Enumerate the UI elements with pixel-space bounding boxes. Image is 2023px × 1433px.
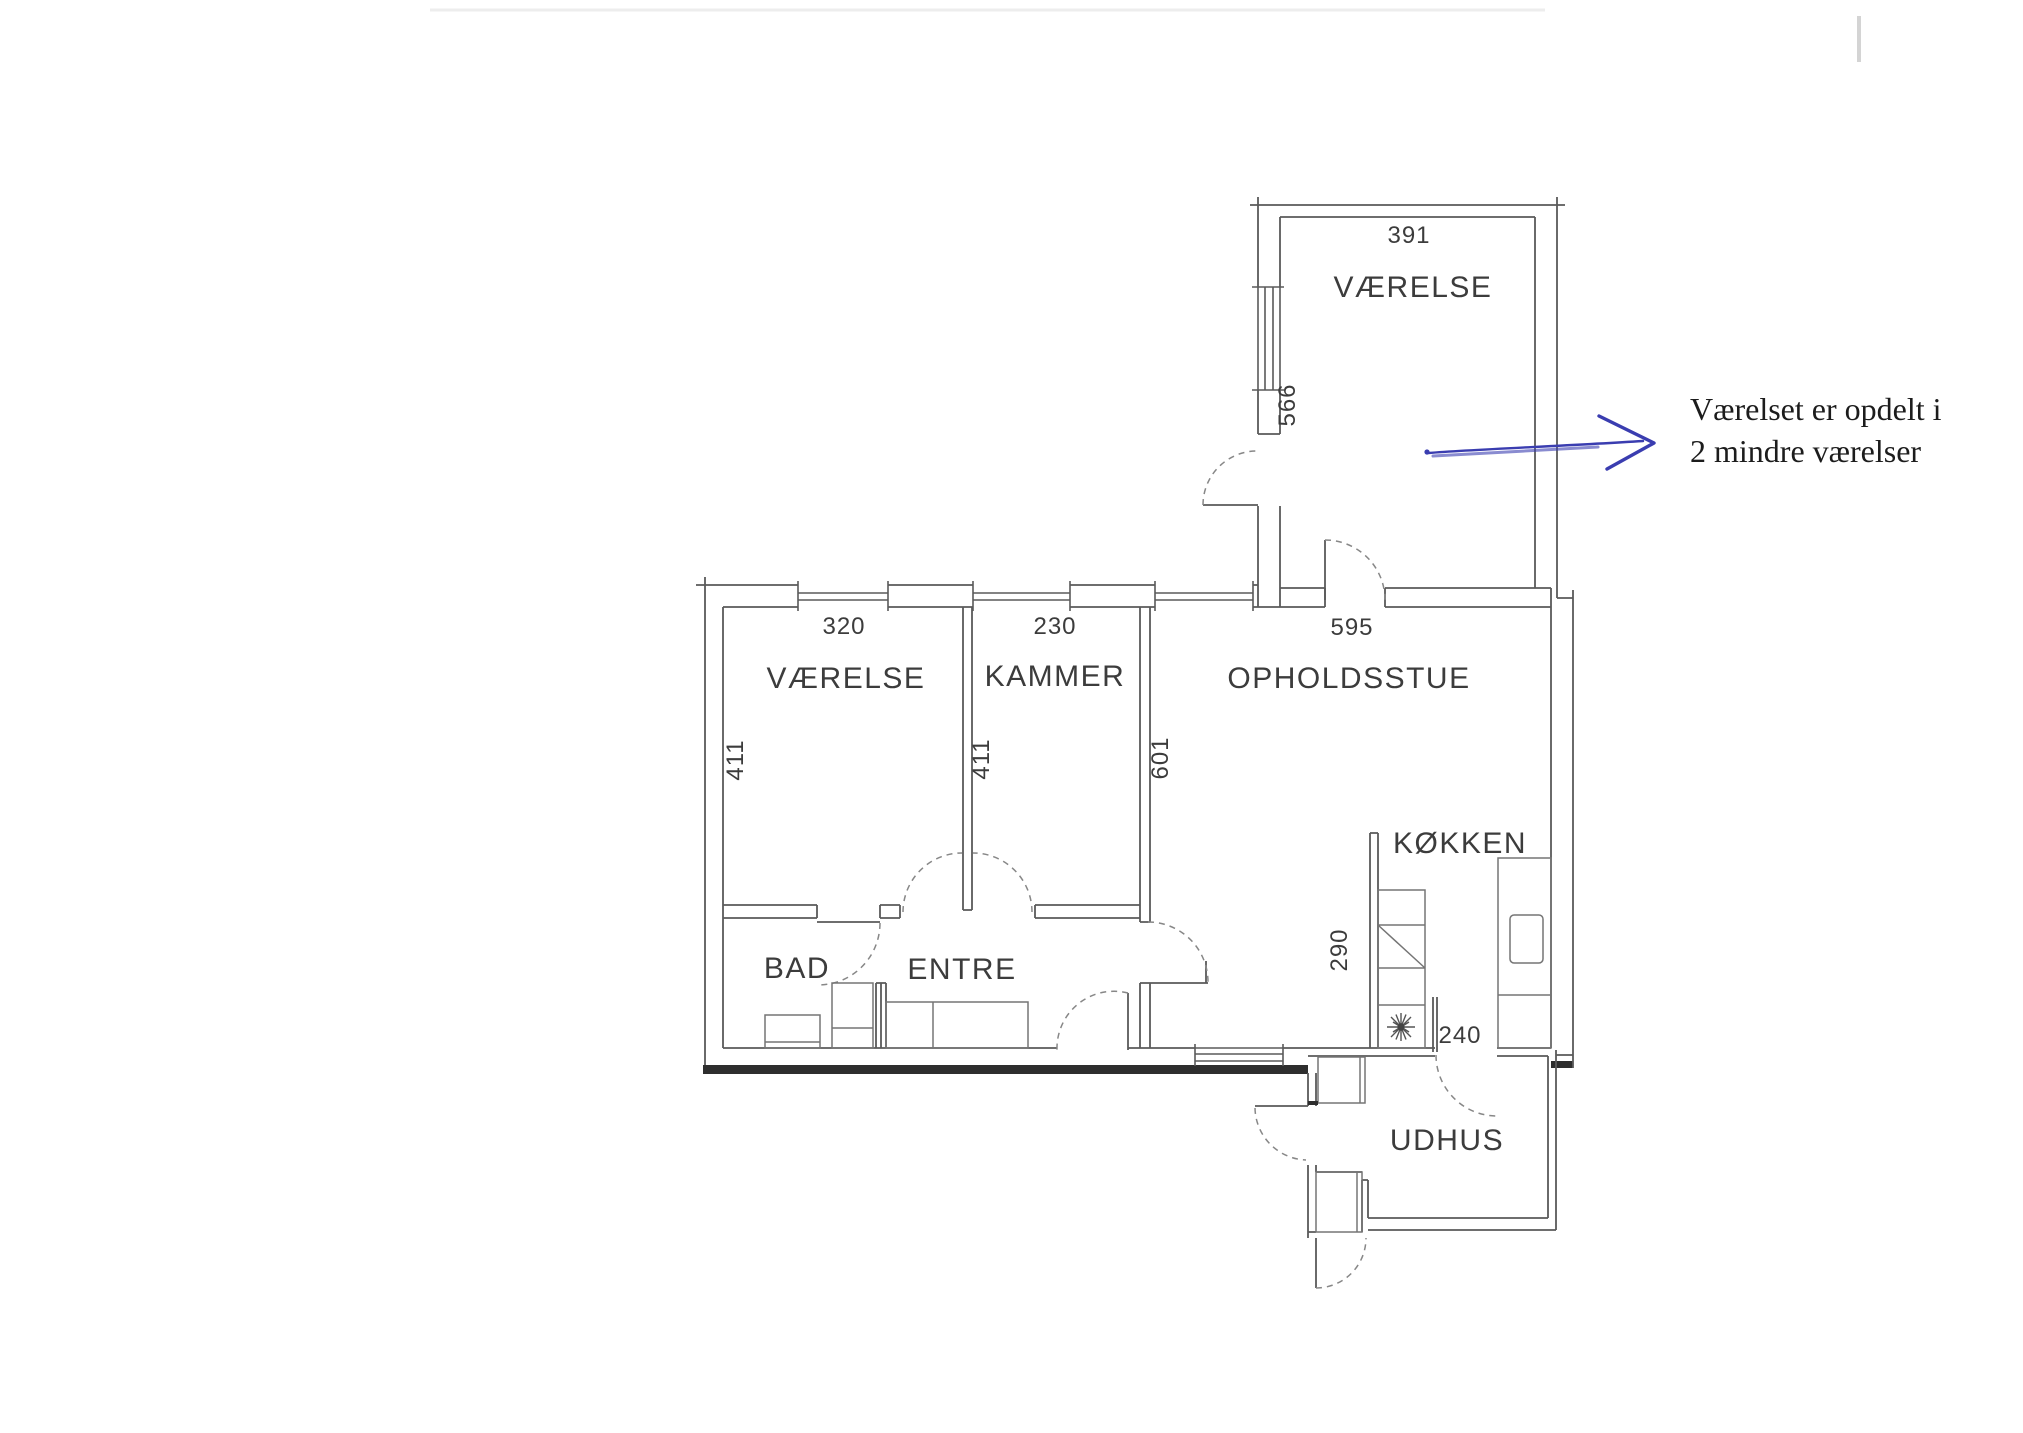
bottom-wall-dark xyxy=(703,1065,1308,1074)
room-label-kammer: KAMMER xyxy=(985,660,1126,693)
stove-burner-icon xyxy=(1387,1013,1415,1041)
dim-koekken-depth: 290 xyxy=(1326,928,1353,971)
dim-kammer-width: 230 xyxy=(1033,613,1076,640)
door-swing-arcs xyxy=(818,451,1497,1288)
closet-outline xyxy=(886,1002,1028,1048)
room-label-entre: ENTRE xyxy=(907,953,1016,986)
dim-vaerelse-width: 320 xyxy=(822,613,865,640)
dim-vaerelse-top-depth: 566 xyxy=(1274,383,1301,426)
floor-plan-scan: VÆRELSE VÆRELSE KAMMER OPHOLDSSTUE KØKKE… xyxy=(0,0,2023,1433)
annotation-line-1: Værelset er opdelt i xyxy=(1690,391,1942,427)
burner-center xyxy=(1397,1023,1404,1030)
entre-closet xyxy=(886,1002,1028,1048)
dim-koekken-width: 240 xyxy=(1438,1022,1481,1049)
room-label-bad: BAD xyxy=(764,952,830,985)
annotation-note: Værelset er opdelt i 2 mindre værelser xyxy=(1690,391,1942,469)
kitchen-cabinet-lines xyxy=(1378,925,1425,1005)
dim-vaerelse-top-width: 391 xyxy=(1387,222,1430,249)
dim-vaerelse-depth: 411 xyxy=(722,739,749,780)
bottom-right-wall-dark xyxy=(1551,1061,1573,1068)
room-label-vaerelse: VÆRELSE xyxy=(767,662,926,695)
room-label-udhus: UDHUS xyxy=(1390,1124,1504,1157)
room-label-opholdsstue: OPHOLDSSTUE xyxy=(1227,662,1470,695)
dimension-labels: 391 566 320 411 230 411 595 601 290 240 xyxy=(722,222,1482,1049)
bath-fixtures xyxy=(765,983,873,1048)
pen-arrow xyxy=(1424,416,1654,469)
udhus-closet-bottom xyxy=(1316,1172,1362,1232)
kitchen-sink xyxy=(1510,915,1543,963)
annotation-line-2: 2 mindre værelser xyxy=(1690,433,1921,469)
dim-opholdsstue-width: 595 xyxy=(1330,614,1373,641)
bath-sink xyxy=(765,1015,820,1048)
scan-edge-mark xyxy=(1857,16,1861,62)
scan-artifacts xyxy=(430,10,1861,62)
dim-kammer-depth: 411 xyxy=(968,738,995,779)
udhus-closet-top xyxy=(1318,1057,1365,1103)
room-label-vaerelse-top: VÆRELSE xyxy=(1334,271,1493,304)
room-label-koekken: KØKKEN xyxy=(1393,827,1527,860)
room-labels: VÆRELSE VÆRELSE KAMMER OPHOLDSSTUE KØKKE… xyxy=(764,271,1527,1157)
dim-opholdsstue-depth: 601 xyxy=(1147,736,1174,779)
outer-wall-dark xyxy=(703,1061,1573,1074)
bath-toilet xyxy=(832,983,873,1048)
